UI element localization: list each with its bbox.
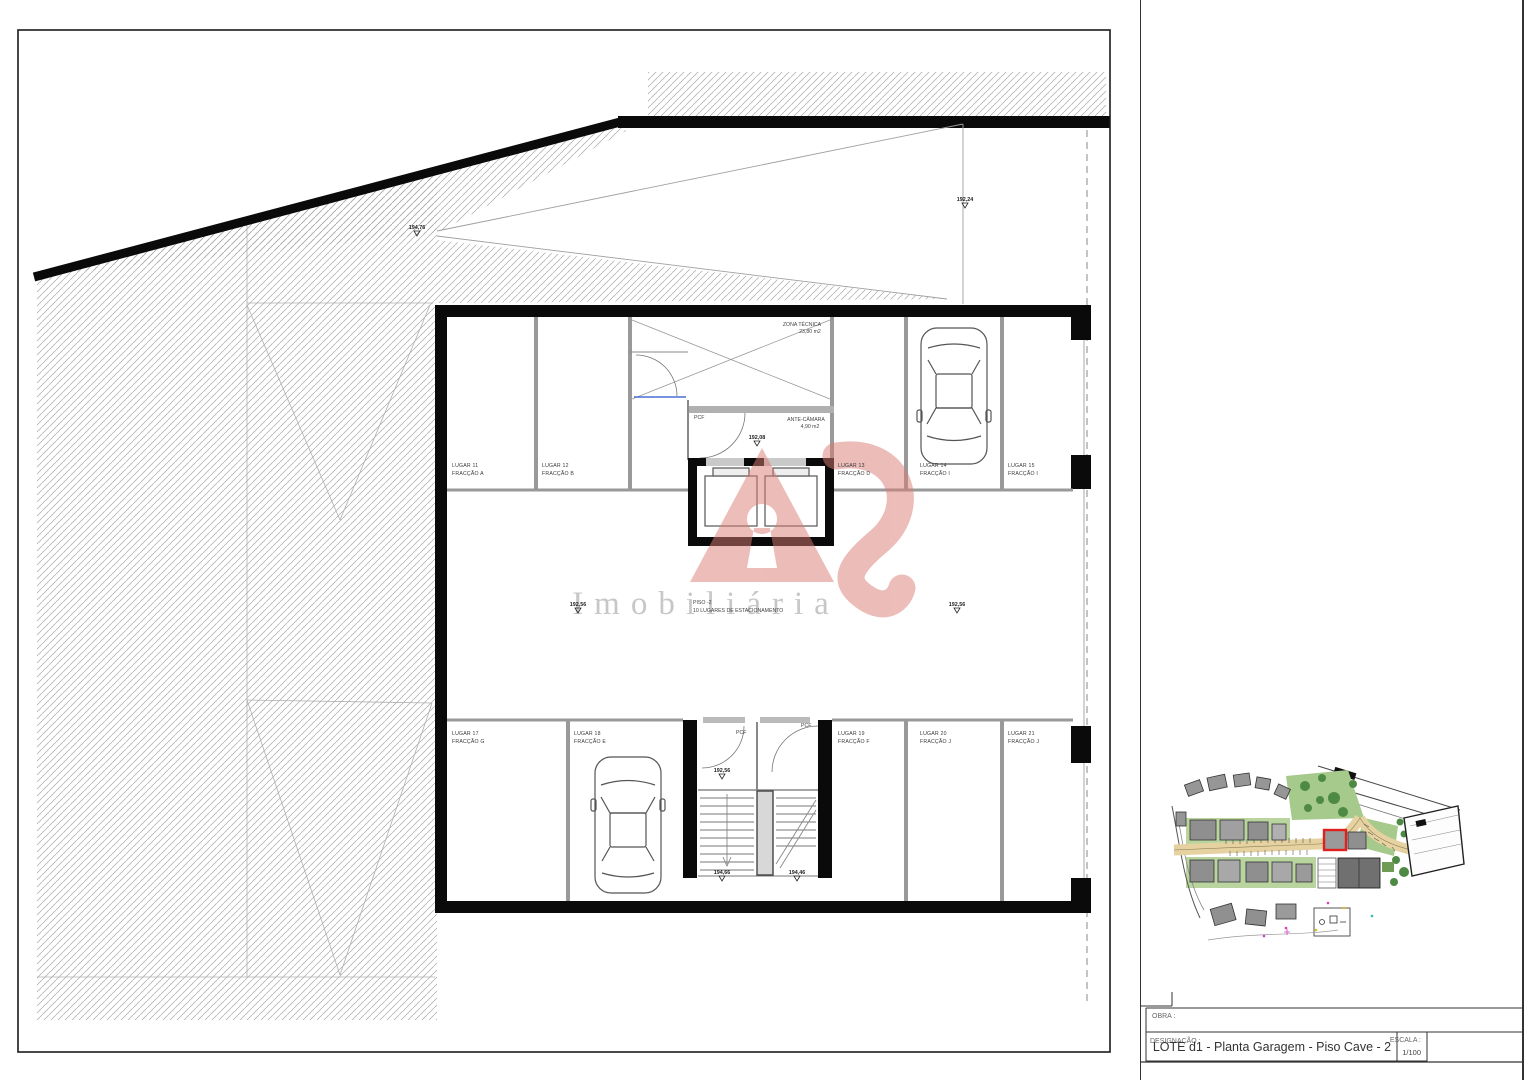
obra-label: OBRA : [1152, 1013, 1175, 1020]
stall-label: LUGAR 11 [452, 463, 478, 469]
stair-center-wall [757, 791, 773, 875]
title-block: OBRA : DESIGNAÇÃO : LOTE d1 - Planta Gar… [1150, 1013, 1421, 1057]
stall-label: LUGAR 20 [920, 731, 947, 737]
stall-label: LUGAR 19 [838, 731, 865, 737]
column [1071, 878, 1091, 913]
door-swing-arc [700, 413, 745, 458]
stair-break-line [776, 800, 816, 868]
stair-core [683, 717, 832, 878]
inset-large-building [1404, 806, 1464, 876]
door-swing-arc [636, 355, 677, 396]
stall-label: LUGAR 14 [920, 463, 947, 469]
ante-camara-label: ANTE-CÂMARA [787, 416, 825, 423]
level-marker: 194,46 [789, 870, 806, 881]
stall-label: FRACÇÃO J [920, 738, 951, 745]
stall-label: LUGAR 13 [838, 463, 865, 469]
stall-label: FRACÇÃO A [452, 470, 484, 477]
door-label-pcf: PCF [801, 723, 811, 729]
stall-label: FRACÇÃO B [542, 470, 574, 477]
inset-center-cluster [1318, 858, 1394, 888]
svg-text:192,24: 192,24 [957, 197, 974, 203]
svg-text:194,76: 194,76 [409, 225, 426, 231]
ante-camara-area: 4,90 m2 [801, 424, 820, 430]
floor-plan-canvas: Imobiliária ZONA TÉCNICA 23,80 m2 ANTE-C… [0, 0, 1527, 1080]
inset-highlight-lot [1324, 830, 1346, 850]
terrain-hatch-region [37, 72, 1106, 1020]
door-label-pcf: PCF [694, 415, 704, 421]
svg-text:192,56: 192,56 [949, 602, 966, 608]
stall-label: FRACÇÃO E [574, 738, 606, 745]
svg-text:194,46: 194,46 [789, 870, 806, 876]
stall-label: LUGAR 15 [1008, 463, 1035, 469]
escala-value: 1/100 [1402, 1048, 1421, 1057]
zona-tecnica-label: ZONA TÉCNICA [783, 321, 822, 328]
parked-car-bottom [591, 757, 665, 893]
escala-label: ESCALA : [1390, 1037, 1421, 1044]
column [1071, 726, 1091, 763]
stall-label: LUGAR 18 [574, 731, 601, 737]
level-marker: 192,56 [949, 602, 966, 613]
level-marker: 192,24 [957, 197, 974, 208]
stall-label: LUGAR 12 [542, 463, 569, 469]
stall-label: FRACÇÃO G [452, 738, 485, 745]
piso-sublabel: 10 LUGARES DE ESTACIONAMENTO [693, 608, 783, 614]
inset-buildings-bottom [1208, 903, 1350, 940]
stall-label: FRACÇÃO J [1008, 738, 1039, 745]
stall-label: FRACÇÃO I [920, 470, 950, 477]
level-marker: 192,08 [749, 435, 766, 446]
level-marker: 194,66 [714, 870, 731, 881]
piso-label: PISO -2 [693, 600, 712, 606]
door-swing-arc [772, 726, 818, 772]
parked-car-top [917, 328, 991, 464]
site-plan-inset [1172, 766, 1464, 940]
zona-tecnica-area: 23,80 m2 [799, 329, 821, 335]
svg-text:192,08: 192,08 [749, 435, 766, 441]
svg-text:194,66: 194,66 [714, 870, 731, 876]
upper-ramp-hatch [648, 72, 1106, 117]
stall-label: FRACÇÃO F [838, 738, 870, 745]
svg-text:192,56: 192,56 [714, 768, 731, 774]
column [1071, 455, 1091, 489]
stall-label: FRACÇÃO I [1008, 470, 1038, 477]
door-label-pcf: PCF [736, 730, 746, 736]
stall-label: FRACÇÃO D [838, 470, 870, 477]
level-marker: 192,56 [714, 768, 731, 779]
designacao-value: LOTE d1 - Planta Garagem - Piso Cave - 2 [1153, 1040, 1391, 1054]
stall-label: LUGAR 21 [1008, 731, 1035, 737]
column [1071, 310, 1091, 340]
stall-label: LUGAR 17 [452, 731, 479, 737]
svg-text:192,56: 192,56 [570, 602, 587, 608]
drawing-sheet-page: Imobiliária ZONA TÉCNICA 23,80 m2 ANTE-C… [0, 0, 1527, 1080]
